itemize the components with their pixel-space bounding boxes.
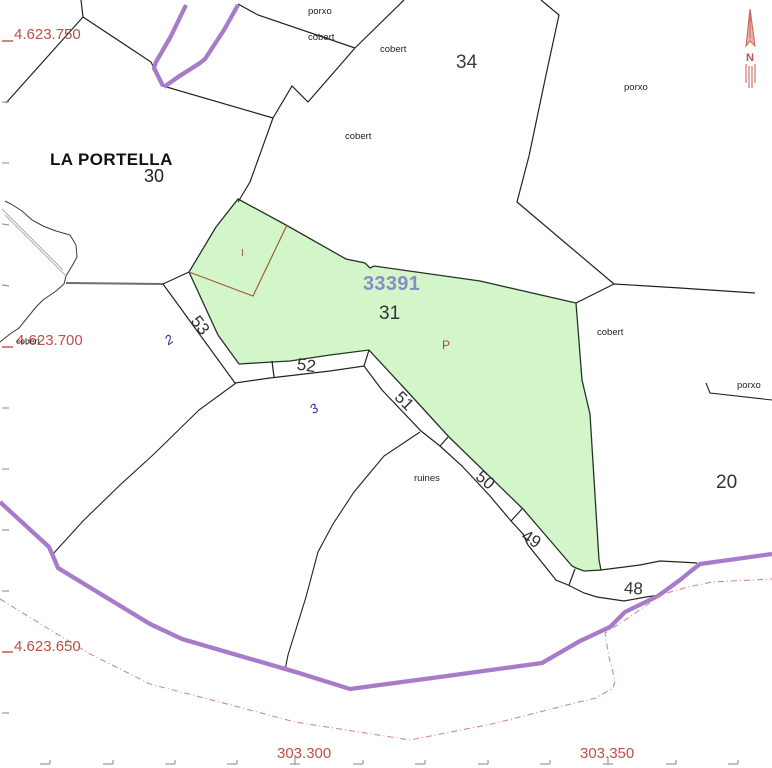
- svg-text:48: 48: [623, 578, 643, 598]
- svg-text:52: 52: [296, 355, 317, 376]
- svg-text:cobert: cobert: [308, 32, 335, 43]
- svg-text:cobert: cobert: [597, 327, 624, 338]
- svg-text:ruines: ruines: [414, 473, 440, 484]
- svg-text:4.623.750: 4.623.750: [14, 26, 81, 43]
- svg-text:porxo: porxo: [737, 380, 761, 391]
- svg-text:P: P: [442, 338, 450, 352]
- svg-text:303.300: 303.300: [277, 745, 331, 762]
- svg-text:N: N: [746, 52, 754, 64]
- svg-text:30: 30: [144, 166, 164, 186]
- svg-text:cobert: cobert: [345, 131, 372, 142]
- svg-text:33391: 33391: [363, 273, 420, 295]
- svg-text:4.623.650: 4.623.650: [14, 638, 81, 655]
- svg-text:31: 31: [379, 303, 400, 324]
- svg-text:20: 20: [716, 472, 737, 493]
- svg-text:I: I: [241, 248, 244, 259]
- svg-text:porxo: porxo: [624, 82, 648, 93]
- svg-text:34: 34: [456, 52, 478, 73]
- svg-text:porxo: porxo: [308, 6, 332, 17]
- svg-text:cobert: cobert: [380, 44, 407, 55]
- svg-text:303.350: 303.350: [580, 745, 634, 762]
- svg-text:cobert: cobert: [16, 336, 40, 346]
